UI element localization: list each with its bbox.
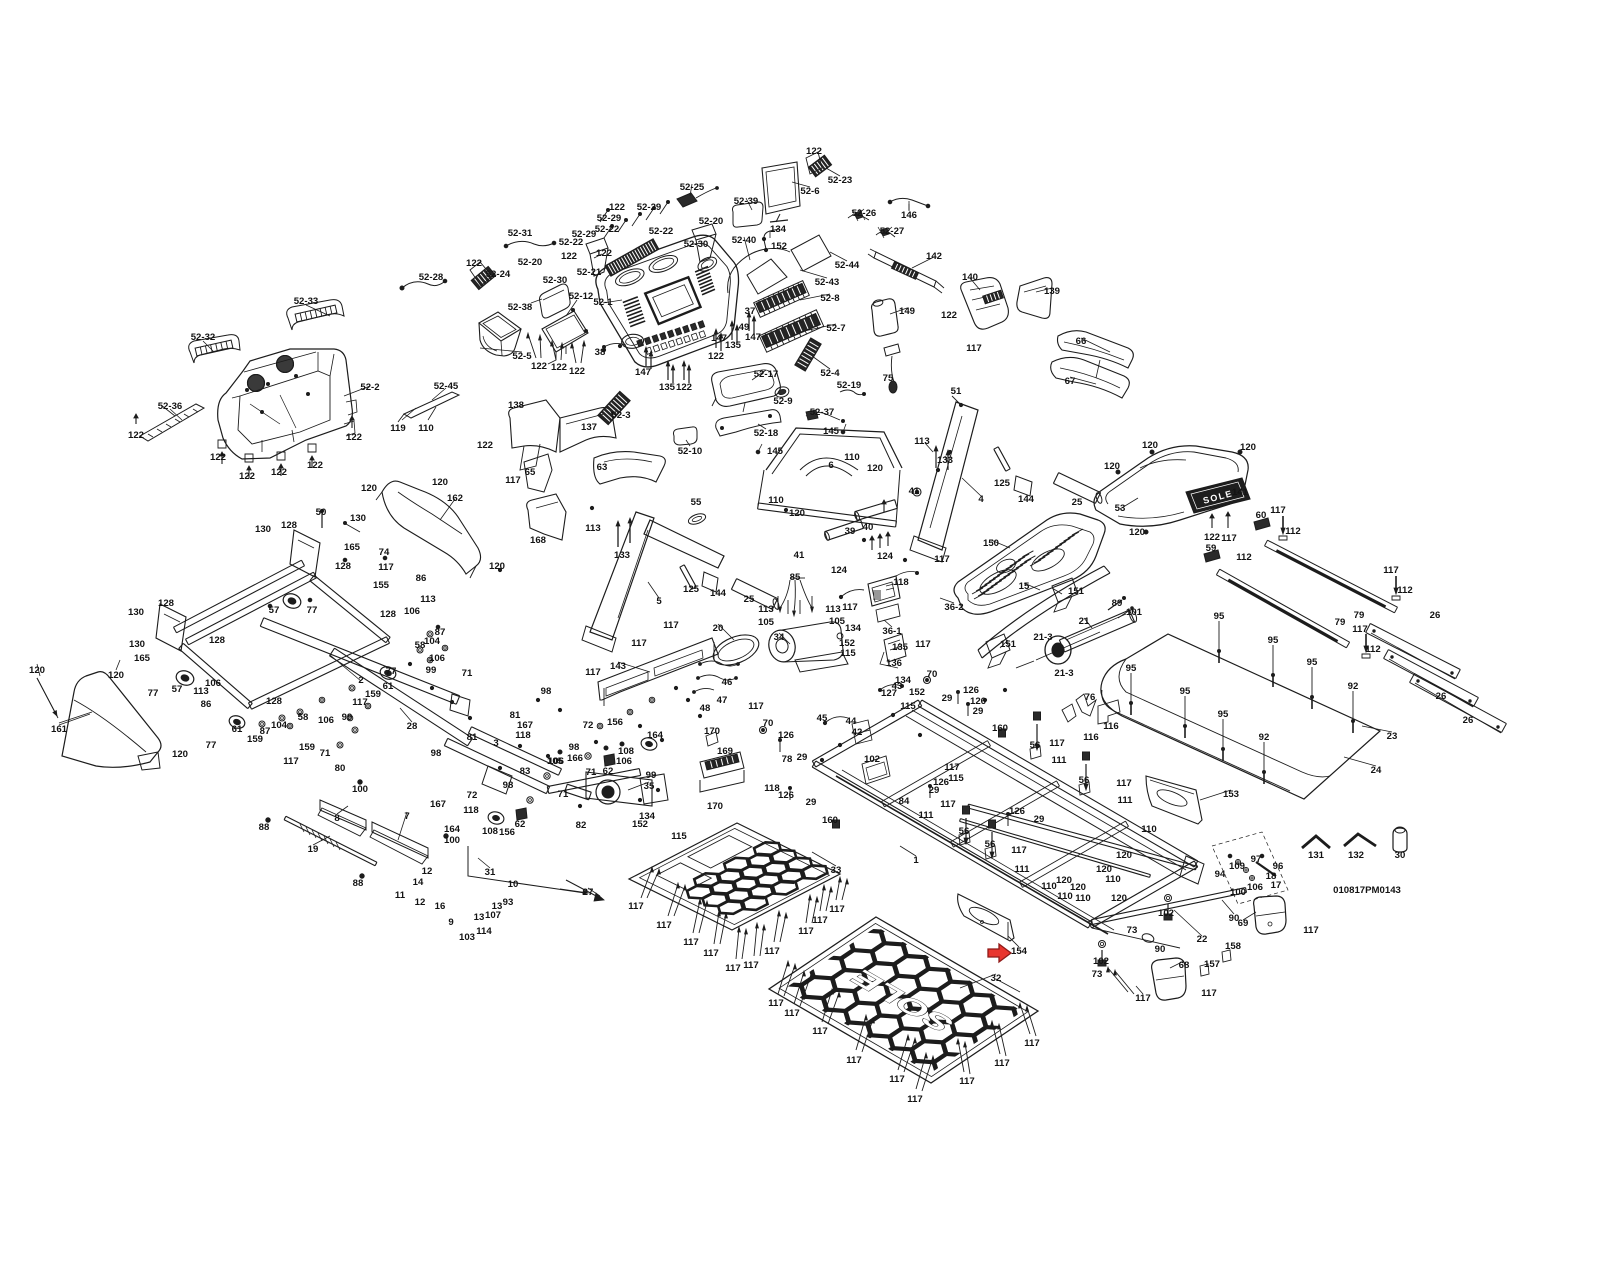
svg-text:101: 101 — [1126, 607, 1143, 618]
svg-text:102: 102 — [1158, 908, 1174, 919]
svg-text:52-24: 52-24 — [486, 269, 511, 280]
svg-text:110: 110 — [1105, 874, 1120, 885]
svg-text:122: 122 — [561, 251, 577, 262]
svg-text:117: 117 — [378, 562, 393, 573]
svg-text:117: 117 — [842, 602, 857, 613]
svg-text:52-4: 52-4 — [820, 368, 840, 379]
svg-text:52-17: 52-17 — [754, 369, 779, 380]
svg-text:60: 60 — [1256, 510, 1267, 521]
svg-text:95: 95 — [1307, 657, 1318, 668]
svg-text:128: 128 — [158, 598, 175, 609]
svg-text:137: 137 — [581, 422, 597, 433]
svg-text:99: 99 — [646, 770, 657, 781]
svg-text:117: 117 — [1270, 505, 1285, 516]
svg-text:88: 88 — [259, 822, 270, 833]
svg-text:130: 130 — [129, 639, 145, 650]
svg-text:120: 120 — [1070, 882, 1086, 893]
svg-text:110: 110 — [1141, 824, 1156, 835]
svg-text:47: 47 — [717, 695, 728, 706]
svg-text:61: 61 — [232, 724, 243, 735]
svg-text:36-1: 36-1 — [882, 626, 902, 637]
svg-text:52-20: 52-20 — [699, 216, 724, 227]
svg-text:99: 99 — [426, 665, 437, 676]
svg-text:34: 34 — [774, 632, 785, 643]
svg-text:135: 135 — [725, 340, 742, 351]
svg-text:62: 62 — [515, 819, 526, 830]
svg-text:52-36: 52-36 — [158, 401, 183, 412]
svg-text:52-32: 52-32 — [191, 332, 216, 343]
svg-text:52-20: 52-20 — [518, 257, 543, 268]
svg-text:98: 98 — [541, 686, 552, 697]
svg-text:164: 164 — [647, 730, 664, 741]
svg-text:117: 117 — [352, 697, 367, 708]
svg-text:40: 40 — [863, 522, 874, 533]
svg-text:95: 95 — [1268, 635, 1279, 646]
svg-text:122: 122 — [551, 362, 567, 373]
svg-text:52-18: 52-18 — [754, 428, 779, 439]
svg-text:120: 120 — [1116, 850, 1132, 861]
svg-text:122: 122 — [569, 366, 585, 377]
svg-text:165: 165 — [344, 542, 361, 553]
svg-text:128: 128 — [380, 609, 397, 620]
svg-text:106: 106 — [318, 715, 334, 726]
svg-text:52-22: 52-22 — [595, 224, 620, 235]
svg-text:17: 17 — [1271, 880, 1282, 891]
svg-text:125: 125 — [683, 584, 700, 595]
svg-text:117: 117 — [907, 1094, 922, 1105]
svg-text:118: 118 — [463, 805, 479, 816]
svg-text:3: 3 — [493, 738, 498, 749]
svg-text:58: 58 — [298, 712, 309, 723]
svg-text:144: 144 — [710, 588, 727, 599]
svg-text:24: 24 — [1371, 765, 1382, 776]
svg-text:95: 95 — [1218, 709, 1229, 720]
svg-text:135: 135 — [892, 642, 909, 653]
svg-text:48: 48 — [700, 703, 711, 714]
svg-text:77: 77 — [148, 688, 159, 699]
svg-text:26: 26 — [1436, 691, 1447, 702]
svg-text:16: 16 — [435, 901, 446, 912]
svg-text:112: 112 — [1365, 644, 1380, 655]
svg-text:120: 120 — [1104, 461, 1120, 472]
svg-text:116: 116 — [1103, 721, 1118, 732]
svg-text:117: 117 — [1011, 845, 1026, 856]
svg-text:114: 114 — [476, 926, 492, 937]
svg-text:41: 41 — [794, 550, 805, 561]
svg-text:152: 152 — [771, 241, 787, 252]
svg-text:98: 98 — [431, 748, 442, 759]
svg-text:98: 98 — [569, 742, 580, 753]
svg-text:128: 128 — [335, 561, 352, 572]
svg-text:62: 62 — [603, 766, 614, 777]
svg-text:143: 143 — [610, 661, 626, 672]
svg-text:77: 77 — [386, 666, 397, 677]
svg-text:159: 159 — [299, 742, 315, 753]
svg-text:122: 122 — [346, 432, 362, 443]
svg-text:117: 117 — [1049, 738, 1064, 749]
svg-text:66: 66 — [1076, 336, 1087, 347]
svg-text:52-22: 52-22 — [649, 226, 674, 237]
svg-text:113: 113 — [193, 686, 208, 697]
svg-text:75: 75 — [883, 373, 894, 384]
svg-text:72: 72 — [467, 790, 478, 801]
svg-text:21-3: 21-3 — [1033, 632, 1052, 643]
svg-text:27: 27 — [583, 887, 594, 898]
svg-text:158: 158 — [1225, 941, 1242, 952]
svg-text:128: 128 — [209, 635, 226, 646]
svg-text:165: 165 — [134, 653, 151, 664]
svg-text:161: 161 — [51, 724, 68, 735]
svg-text:117: 117 — [631, 638, 646, 649]
svg-text:56: 56 — [1030, 740, 1041, 751]
svg-text:115: 115 — [900, 701, 916, 712]
svg-text:4: 4 — [978, 494, 984, 505]
svg-text:52-33: 52-33 — [294, 296, 319, 307]
svg-text:117: 117 — [725, 963, 740, 974]
svg-text:71: 71 — [558, 789, 569, 800]
svg-text:134: 134 — [845, 623, 862, 634]
svg-text:57: 57 — [269, 605, 280, 616]
svg-text:52-21: 52-21 — [577, 267, 602, 278]
svg-text:169: 169 — [717, 746, 733, 757]
svg-text:144: 144 — [1018, 494, 1035, 505]
svg-text:117: 117 — [768, 998, 783, 1009]
svg-text:117: 117 — [283, 756, 298, 767]
svg-text:10: 10 — [508, 879, 519, 890]
svg-text:113: 113 — [758, 604, 773, 615]
svg-text:12: 12 — [415, 897, 426, 908]
svg-text:139: 139 — [1044, 286, 1060, 297]
svg-text:120: 120 — [789, 508, 805, 519]
svg-text:52-40: 52-40 — [732, 235, 757, 246]
svg-text:85: 85 — [790, 572, 801, 583]
svg-text:126: 126 — [1009, 806, 1025, 817]
svg-text:29: 29 — [942, 693, 953, 704]
svg-text:6: 6 — [828, 460, 833, 471]
svg-text:52-26: 52-26 — [852, 208, 877, 219]
svg-text:122: 122 — [128, 430, 144, 441]
svg-text:116: 116 — [1083, 732, 1098, 743]
svg-text:56: 56 — [985, 839, 996, 850]
svg-text:25: 25 — [1072, 497, 1083, 508]
svg-text:21-3: 21-3 — [1054, 668, 1073, 679]
svg-text:117: 117 — [1303, 925, 1318, 936]
svg-text:122: 122 — [676, 382, 692, 393]
svg-text:117: 117 — [505, 475, 520, 486]
svg-text:79: 79 — [1335, 617, 1346, 628]
svg-text:120: 120 — [1240, 442, 1256, 453]
svg-text:1: 1 — [913, 855, 919, 866]
svg-text:135: 135 — [659, 382, 676, 393]
svg-text:83: 83 — [520, 766, 531, 777]
svg-text:152: 152 — [909, 687, 925, 698]
svg-text:52-19: 52-19 — [837, 380, 862, 391]
svg-text:104: 104 — [271, 720, 288, 731]
svg-text:52-23: 52-23 — [828, 175, 853, 186]
svg-text:110: 110 — [1075, 893, 1090, 904]
svg-text:113: 113 — [914, 436, 929, 447]
svg-text:70: 70 — [763, 718, 774, 729]
svg-text:52-3: 52-3 — [611, 410, 630, 421]
svg-text:63: 63 — [597, 462, 608, 473]
svg-text:120: 120 — [29, 665, 45, 676]
svg-text:52-2: 52-2 — [360, 382, 379, 393]
svg-text:111: 111 — [919, 810, 935, 821]
svg-text:156: 156 — [499, 827, 515, 838]
svg-text:128: 128 — [281, 520, 298, 531]
svg-text:117: 117 — [1221, 533, 1236, 544]
svg-text:94: 94 — [1215, 869, 1226, 880]
svg-text:12: 12 — [422, 866, 433, 877]
svg-text:52-28: 52-28 — [419, 272, 444, 283]
svg-text:170: 170 — [707, 801, 723, 812]
svg-text:117: 117 — [743, 960, 758, 971]
svg-text:31: 31 — [485, 867, 496, 878]
svg-text:117: 117 — [812, 1026, 827, 1037]
svg-text:100: 100 — [1230, 887, 1246, 898]
svg-text:122: 122 — [806, 146, 822, 157]
svg-text:159: 159 — [247, 734, 263, 745]
svg-text:151: 151 — [1000, 639, 1017, 650]
svg-text:125: 125 — [994, 478, 1011, 489]
svg-text:122: 122 — [477, 440, 493, 451]
svg-text:53: 53 — [1115, 503, 1126, 514]
svg-text:122: 122 — [239, 471, 255, 482]
svg-text:117: 117 — [703, 948, 718, 959]
svg-text:100: 100 — [352, 784, 368, 795]
svg-text:117: 117 — [944, 762, 959, 773]
svg-text:120: 120 — [1111, 893, 1127, 904]
svg-text:117: 117 — [915, 639, 930, 650]
svg-text:5: 5 — [656, 596, 662, 607]
svg-text:95: 95 — [1214, 611, 1225, 622]
svg-text:117: 117 — [829, 904, 844, 915]
svg-text:109: 109 — [1229, 861, 1245, 872]
svg-text:52-25: 52-25 — [680, 182, 705, 193]
svg-text:77: 77 — [307, 605, 318, 616]
svg-text:32: 32 — [991, 973, 1002, 984]
svg-text:57: 57 — [172, 684, 183, 695]
svg-text:117: 117 — [812, 915, 827, 926]
svg-text:26: 26 — [1430, 610, 1441, 621]
svg-text:133: 133 — [614, 550, 630, 561]
svg-text:126: 126 — [963, 685, 979, 696]
svg-text:110: 110 — [768, 495, 783, 506]
svg-text:120: 120 — [489, 561, 505, 572]
svg-text:141: 141 — [1232, 487, 1249, 498]
svg-text:118: 118 — [893, 577, 909, 588]
svg-text:98: 98 — [503, 780, 514, 791]
svg-text:119: 119 — [390, 423, 405, 434]
svg-text:108: 108 — [618, 746, 635, 757]
svg-text:52-27: 52-27 — [880, 226, 905, 237]
svg-text:122: 122 — [210, 452, 226, 463]
svg-text:15: 15 — [1019, 581, 1030, 592]
svg-text:37: 37 — [745, 306, 756, 317]
svg-text:52-5: 52-5 — [512, 351, 532, 362]
svg-text:115: 115 — [671, 831, 687, 842]
svg-text:11: 11 — [395, 890, 406, 901]
svg-text:67: 67 — [1065, 376, 1076, 387]
svg-text:113: 113 — [585, 523, 600, 534]
svg-text:52-39: 52-39 — [734, 196, 759, 207]
svg-text:95: 95 — [1180, 686, 1191, 697]
svg-text:23: 23 — [1387, 731, 1398, 742]
svg-text:132: 132 — [1348, 850, 1364, 861]
svg-text:105: 105 — [547, 756, 564, 767]
svg-text:111: 111 — [1118, 795, 1134, 806]
svg-text:118: 118 — [515, 730, 531, 741]
svg-text:52-29: 52-29 — [597, 213, 622, 224]
svg-text:33: 33 — [831, 865, 842, 876]
svg-text:170: 170 — [704, 726, 720, 737]
svg-text:164: 164 — [444, 824, 461, 835]
svg-text:100: 100 — [444, 835, 460, 846]
svg-text:112: 112 — [1397, 585, 1412, 596]
svg-text:130: 130 — [255, 524, 271, 535]
svg-text:102: 102 — [1093, 956, 1109, 967]
svg-text:21: 21 — [1079, 616, 1090, 627]
svg-text:130: 130 — [128, 607, 144, 618]
svg-text:155: 155 — [373, 580, 390, 591]
svg-text:120: 120 — [867, 463, 883, 474]
svg-text:41: 41 — [909, 486, 920, 497]
svg-text:95: 95 — [1126, 663, 1137, 674]
svg-text:69: 69 — [1238, 918, 1249, 929]
svg-text:7: 7 — [404, 811, 409, 822]
svg-text:70: 70 — [927, 669, 938, 680]
svg-text:2: 2 — [358, 675, 363, 686]
svg-text:61: 61 — [383, 681, 394, 692]
svg-text:168: 168 — [530, 535, 547, 546]
svg-text:131: 131 — [1308, 850, 1325, 861]
svg-text:28: 28 — [407, 721, 418, 732]
svg-text:122: 122 — [708, 351, 724, 362]
svg-text:122: 122 — [307, 460, 323, 471]
svg-text:92: 92 — [1348, 681, 1359, 692]
svg-text:134: 134 — [895, 675, 912, 686]
svg-text:82: 82 — [576, 820, 587, 831]
svg-text:111: 111 — [1015, 864, 1031, 875]
svg-text:117: 117 — [585, 667, 600, 678]
svg-text:86: 86 — [416, 573, 427, 584]
svg-text:56: 56 — [1079, 775, 1090, 786]
svg-text:71: 71 — [320, 748, 331, 759]
svg-text:166: 166 — [567, 753, 583, 764]
svg-text:52-43: 52-43 — [815, 277, 840, 288]
svg-text:45: 45 — [817, 713, 828, 724]
svg-text:90: 90 — [1155, 944, 1166, 955]
svg-text:149: 149 — [899, 306, 915, 317]
svg-text:87: 87 — [435, 627, 446, 638]
svg-text:52-9: 52-9 — [773, 396, 792, 407]
svg-text:102: 102 — [864, 754, 880, 765]
svg-text:29: 29 — [929, 785, 940, 796]
svg-text:010817PM0143: 010817PM0143 — [1333, 885, 1401, 896]
svg-text:99: 99 — [342, 712, 353, 723]
svg-text:145: 145 — [767, 446, 784, 457]
svg-text:152: 152 — [632, 819, 648, 830]
svg-text:93: 93 — [503, 897, 514, 908]
svg-text:140: 140 — [962, 272, 978, 283]
svg-text:25: 25 — [744, 594, 755, 605]
svg-text:52-30: 52-30 — [543, 275, 568, 286]
svg-text:20: 20 — [713, 623, 724, 634]
svg-text:120: 120 — [1142, 440, 1158, 451]
svg-text:110: 110 — [418, 423, 433, 434]
svg-text:151: 151 — [1068, 586, 1085, 597]
svg-text:44: 44 — [846, 716, 857, 727]
svg-text:150: 150 — [983, 538, 999, 549]
svg-text:80: 80 — [335, 763, 346, 774]
svg-text:124: 124 — [831, 565, 848, 576]
svg-text:117: 117 — [748, 701, 763, 712]
svg-text:52-37: 52-37 — [810, 407, 835, 418]
svg-text:106: 106 — [616, 756, 632, 767]
svg-text:89: 89 — [1112, 598, 1123, 609]
svg-text:117: 117 — [1352, 624, 1367, 635]
svg-text:117: 117 — [1383, 565, 1398, 576]
svg-text:147: 147 — [745, 332, 761, 343]
svg-text:167: 167 — [430, 799, 446, 810]
svg-text:113: 113 — [825, 604, 840, 615]
svg-text:86: 86 — [201, 699, 212, 710]
svg-text:52-6: 52-6 — [800, 186, 819, 197]
svg-text:55: 55 — [691, 497, 702, 508]
svg-text:36-2: 36-2 — [944, 602, 963, 613]
svg-text:52-44: 52-44 — [835, 260, 860, 271]
svg-text:52-8: 52-8 — [820, 293, 840, 304]
svg-text:13: 13 — [474, 912, 485, 923]
svg-text:120: 120 — [1129, 527, 1145, 538]
svg-text:29: 29 — [1034, 814, 1045, 825]
svg-text:117: 117 — [994, 1058, 1009, 1069]
svg-text:117: 117 — [656, 920, 671, 931]
svg-text:162: 162 — [447, 493, 463, 504]
svg-text:50: 50 — [316, 507, 327, 518]
svg-text:52-29: 52-29 — [637, 202, 662, 213]
svg-text:68: 68 — [1179, 960, 1190, 971]
svg-text:117: 117 — [889, 1074, 904, 1085]
svg-text:117: 117 — [940, 799, 955, 810]
svg-text:52-7: 52-7 — [826, 323, 845, 334]
svg-text:29: 29 — [973, 706, 984, 717]
svg-text:88: 88 — [353, 878, 364, 889]
svg-text:120: 120 — [108, 670, 124, 681]
svg-text:76: 76 — [1085, 692, 1096, 703]
svg-text:115: 115 — [948, 773, 964, 784]
svg-text:52-1: 52-1 — [593, 297, 613, 308]
svg-text:108: 108 — [482, 826, 499, 837]
svg-text:112: 112 — [1285, 526, 1300, 537]
svg-text:122: 122 — [466, 258, 482, 269]
svg-text:120: 120 — [361, 483, 377, 494]
svg-text:157: 157 — [1204, 959, 1220, 970]
svg-text:105: 105 — [829, 616, 846, 627]
svg-text:74: 74 — [379, 547, 390, 558]
svg-text:92: 92 — [1259, 732, 1270, 743]
svg-text:65: 65 — [525, 467, 536, 478]
svg-text:122: 122 — [271, 467, 287, 478]
svg-text:160: 160 — [822, 815, 838, 826]
svg-text:117: 117 — [966, 343, 981, 354]
svg-text:154: 154 — [1011, 946, 1028, 957]
svg-text:26: 26 — [1463, 715, 1474, 726]
svg-text:117: 117 — [1201, 988, 1216, 999]
svg-text:133: 133 — [937, 455, 953, 466]
svg-text:117: 117 — [959, 1076, 974, 1087]
svg-text:111: 111 — [1052, 755, 1068, 766]
